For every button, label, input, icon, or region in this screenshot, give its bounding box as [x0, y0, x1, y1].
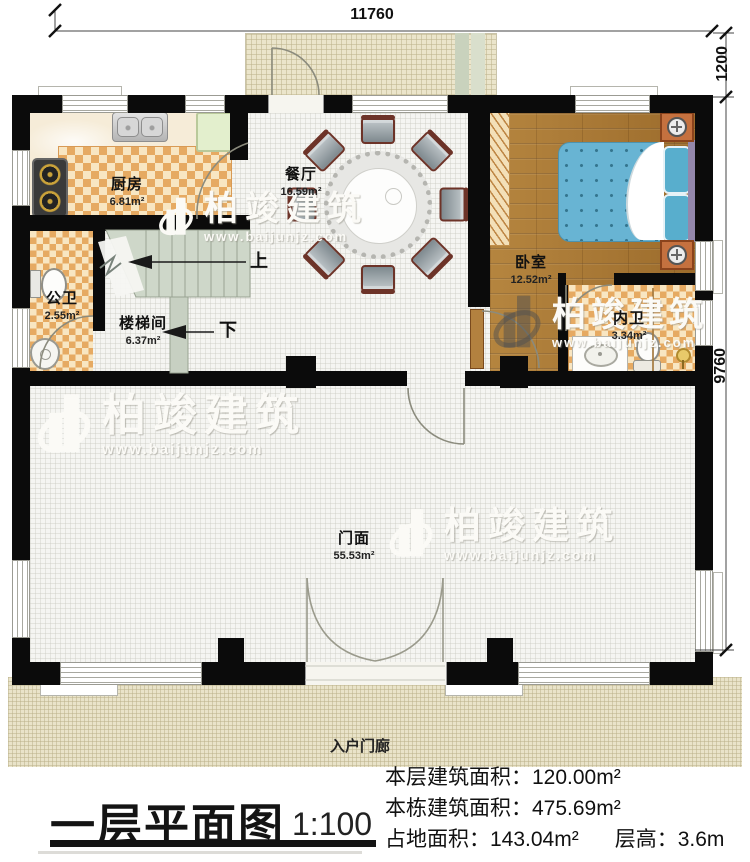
nightstand: [660, 240, 694, 270]
room-label-ensuite-bath: 内卫 3.34m²: [612, 309, 647, 343]
room-label-stairwell: 楼梯间 6.37m²: [119, 314, 167, 348]
porch-label: 入户门廊: [330, 735, 390, 756]
stat-value: 475.69m²: [532, 797, 621, 820]
wardrobe: [488, 110, 510, 246]
window-sill: [40, 684, 118, 696]
window-sill: [713, 572, 723, 654]
shower-partition: [652, 288, 654, 371]
area-statistics: 本层建筑面积：120.00m² 本栋建筑面积：475.69m² 占地面积：143…: [385, 762, 724, 855]
dimension-right-lower: 9760: [712, 348, 730, 384]
gas-stove: [32, 158, 68, 218]
wall: [12, 215, 250, 231]
window: [575, 95, 650, 113]
dining-chair: [440, 188, 467, 222]
window: [12, 150, 30, 206]
column: [218, 638, 244, 664]
window: [695, 241, 713, 291]
dimension-right-upper: 1200: [714, 46, 732, 82]
room-name: 门面: [334, 529, 375, 549]
shower-icon: [676, 348, 691, 363]
room-name: 内卫: [612, 309, 647, 329]
window: [62, 95, 128, 113]
room-label-storefront: 门面 55.53m²: [334, 529, 375, 563]
room-area: 12.52m²: [511, 273, 552, 287]
stat-value: 3.6m: [678, 828, 725, 851]
room-area: 2.55m²: [45, 309, 80, 323]
wall: [12, 371, 407, 386]
room-name: 楼梯间: [119, 314, 167, 334]
lamp-icon: [667, 117, 687, 137]
headboard: [688, 140, 695, 242]
window: [185, 95, 225, 113]
wall: [468, 95, 490, 307]
dining-chair: [361, 265, 395, 292]
room-area: 6.81m²: [110, 195, 145, 209]
kitchen-checker-floor: [58, 146, 232, 217]
title-underline: [50, 840, 376, 847]
toilet-tank: [30, 270, 41, 298]
stat-label: 占地面积：: [385, 828, 490, 851]
stat-label: 层高：: [615, 828, 678, 851]
room-name: 卧室: [511, 253, 552, 273]
kitchen-sink: [112, 112, 168, 142]
stair-up-label: 上: [250, 247, 268, 273]
wall: [230, 95, 248, 160]
window: [60, 662, 202, 685]
window: [518, 662, 650, 685]
room-label-bedroom: 卧室 12.52m²: [511, 253, 552, 287]
room-area: 3.34m²: [612, 329, 647, 343]
stat-label: 本层建筑面积：: [385, 766, 532, 789]
window-sill: [445, 684, 523, 696]
room-area: 16.59m²: [281, 185, 322, 199]
stair-down-label: 下: [219, 316, 237, 342]
stat-value: 143.04m²: [490, 828, 579, 851]
room-label-kitchen: 厨房 6.81m²: [110, 175, 145, 209]
room-name: 公卫: [45, 289, 80, 309]
pillow: [663, 146, 691, 194]
terrace-strip: [471, 33, 485, 95]
pillow: [663, 194, 691, 242]
nightstand: [660, 112, 694, 142]
room-label-dining: 餐厅 16.59m²: [281, 165, 322, 199]
entrance-opening: [305, 662, 447, 685]
window-sill: [713, 240, 723, 294]
room-area: 55.53m²: [334, 549, 375, 563]
window: [695, 570, 713, 652]
dining-table: [324, 151, 432, 259]
dimension-top-width: 11760: [350, 6, 394, 24]
window: [12, 308, 30, 368]
wall: [128, 95, 185, 113]
wall: [558, 273, 566, 285]
column: [500, 356, 528, 388]
stat-row: 本层建筑面积：120.00m²: [385, 762, 724, 793]
room-name: 厨房: [110, 175, 145, 195]
wall: [322, 95, 352, 113]
room-label-public-bath: 公卫 2.55m²: [45, 289, 80, 323]
stat-row: 占地面积：143.04m²层高：3.6m: [385, 824, 724, 855]
terrace-strip: [455, 33, 469, 95]
window: [352, 95, 448, 113]
wall: [558, 285, 568, 371]
column: [286, 356, 316, 388]
terrace-door-opening: [268, 95, 324, 113]
window: [695, 300, 713, 346]
stat-row: 本栋建筑面积：475.69m²: [385, 793, 724, 824]
room-area: 6.37m²: [119, 334, 167, 348]
stat-value: 120.00m²: [532, 766, 621, 789]
room-name: 餐厅: [281, 165, 322, 185]
bedroom-door-leaf: [470, 309, 484, 369]
stat-label: 本栋建筑面积：: [385, 797, 532, 820]
dining-chair: [361, 117, 395, 144]
window: [12, 560, 30, 638]
title-underline-shadow: [38, 851, 362, 854]
lamp-icon: [667, 245, 687, 265]
floor-plan-canvas: 厨房 6.81m² 餐厅 16.59m² 卧室 12.52m² 公卫 2.55m…: [0, 0, 750, 862]
column: [487, 638, 513, 664]
plan-scale: 1:100: [292, 806, 372, 843]
wall: [93, 231, 105, 331]
